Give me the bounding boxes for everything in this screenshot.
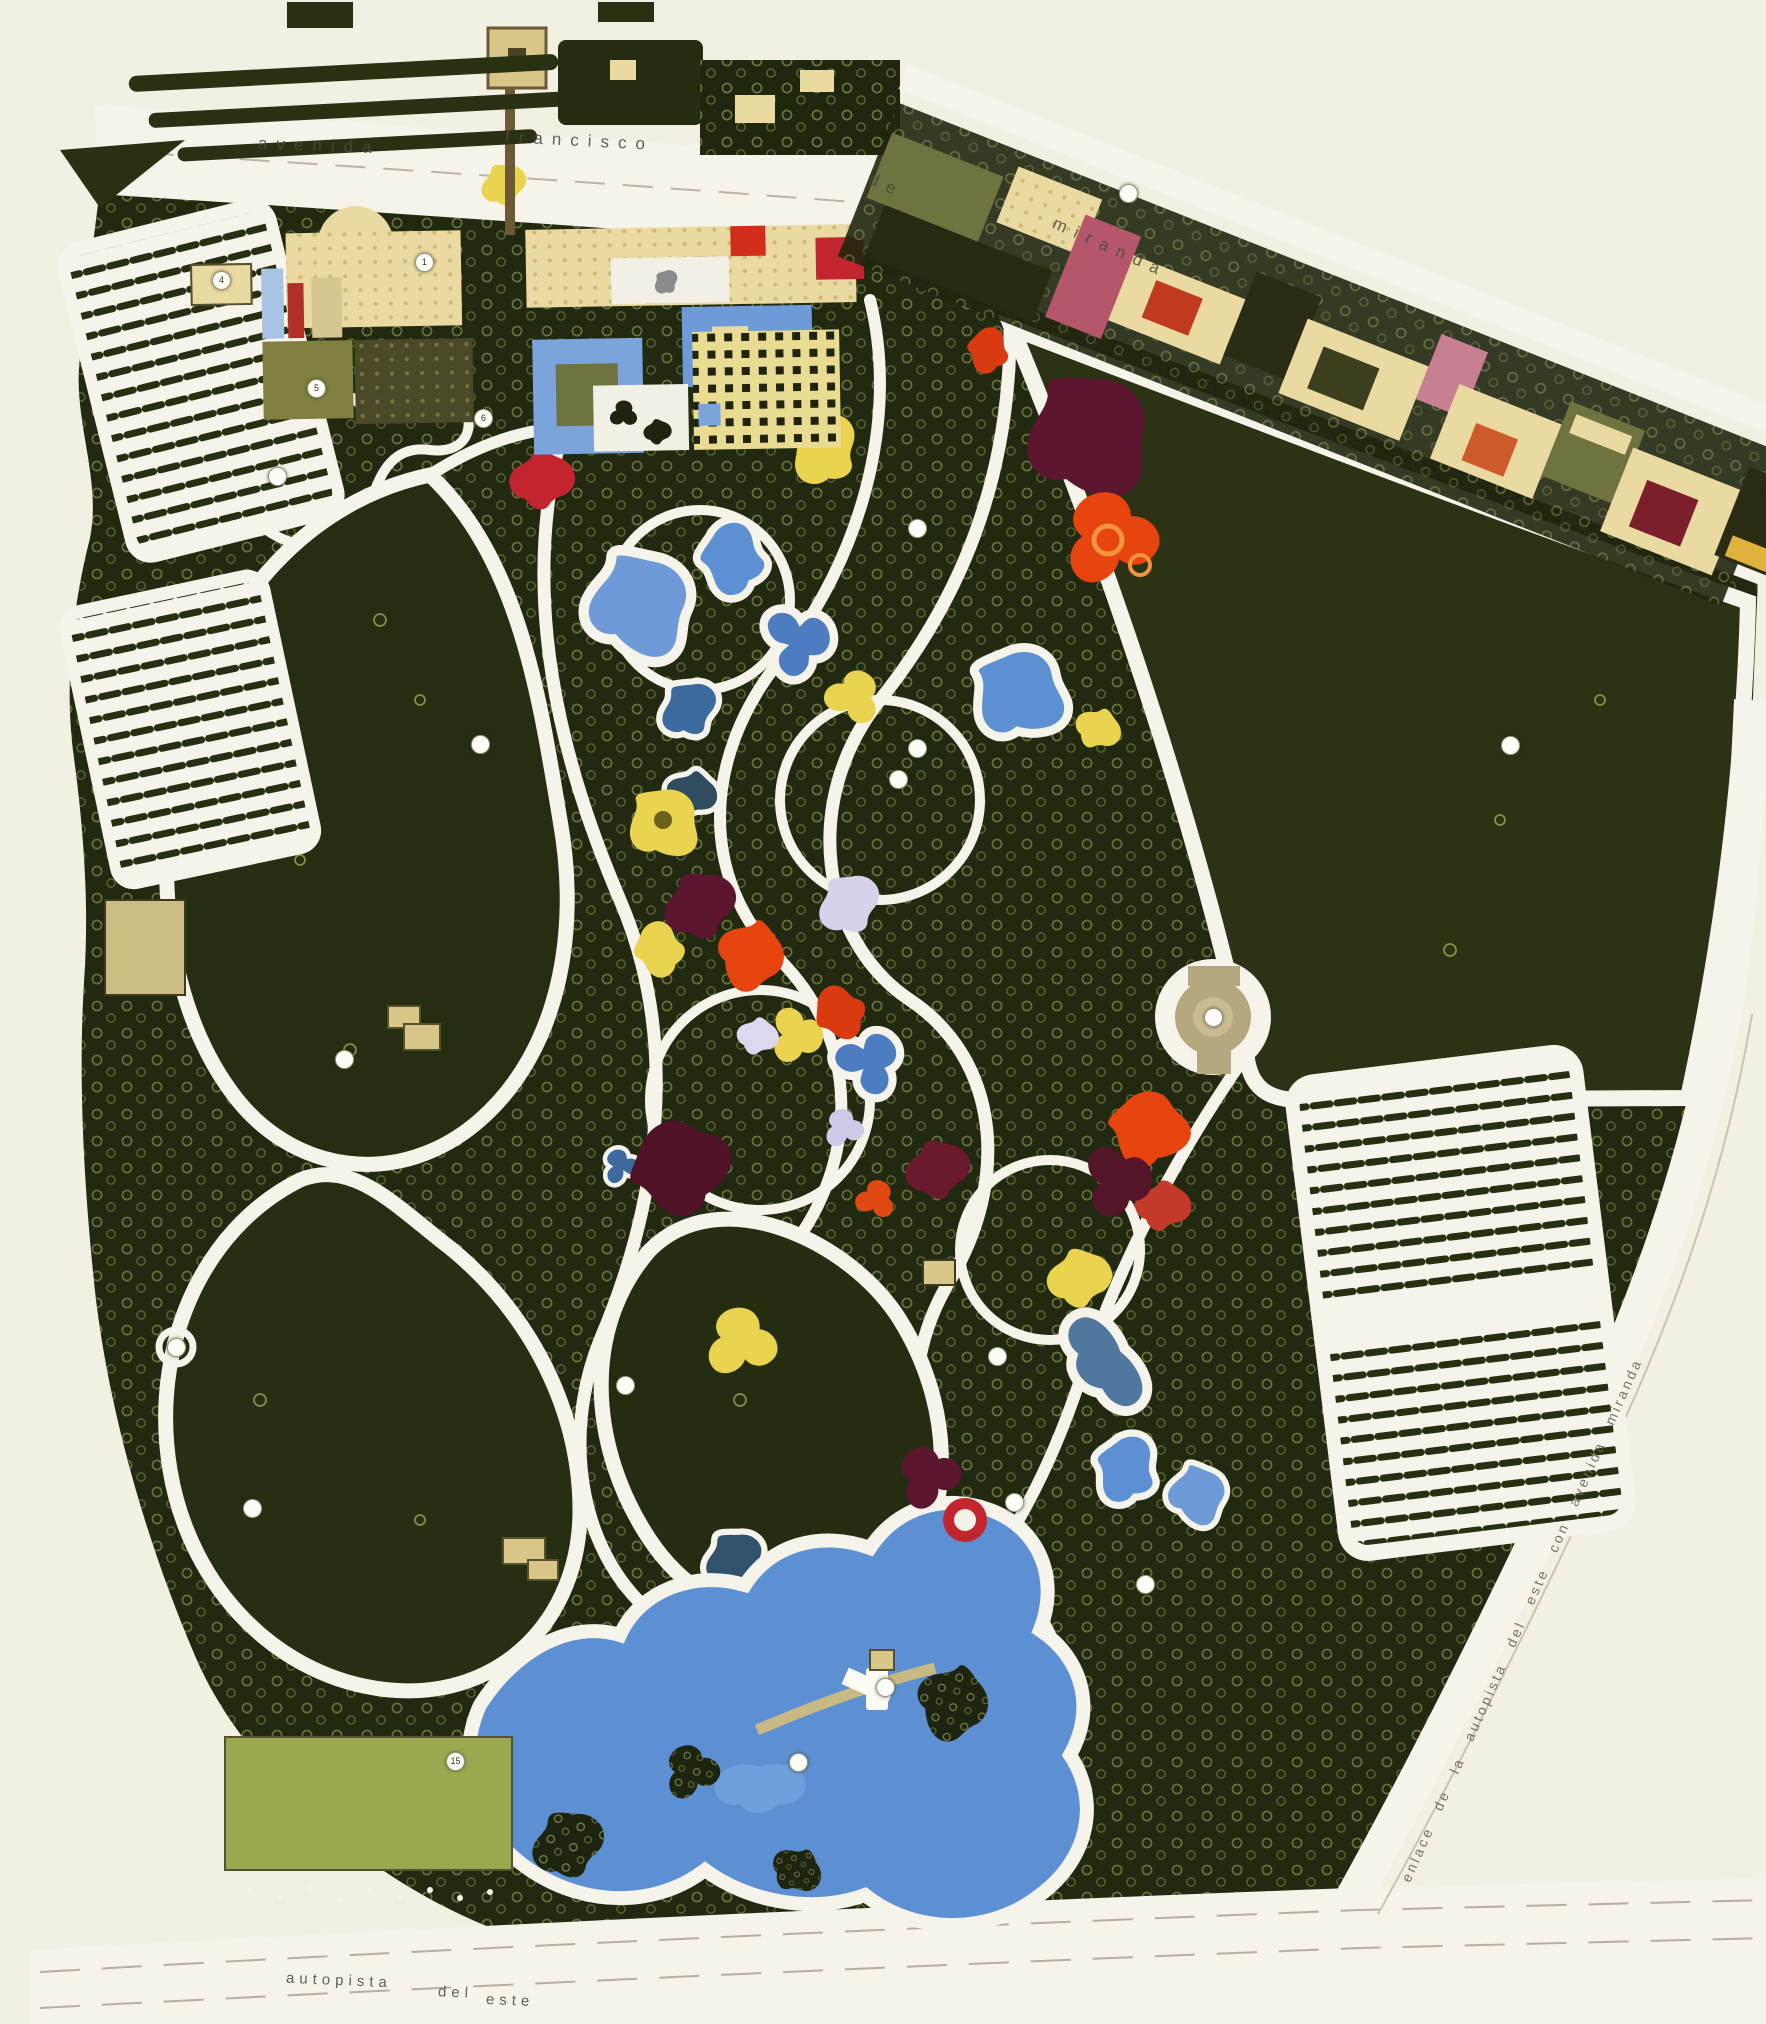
map-marker	[471, 735, 490, 754]
map-marker	[1501, 736, 1520, 755]
map-marker	[1136, 1575, 1155, 1594]
map-marker-15: 15	[446, 1752, 465, 1771]
map-marker	[908, 739, 927, 758]
garden-kiosk	[923, 1260, 955, 1285]
road-label-este: este	[486, 1991, 535, 2010]
map-marker	[1119, 184, 1138, 203]
pavilion-west	[105, 900, 185, 995]
map-marker	[243, 1499, 262, 1518]
map-marker	[789, 1753, 808, 1772]
map-marker	[908, 519, 927, 538]
plan-drawing	[0, 0, 1766, 2024]
map-marker-6: 6	[474, 409, 493, 428]
map-marker	[1204, 1008, 1223, 1027]
museum-complex	[525, 224, 867, 455]
map-marker	[335, 1050, 354, 1069]
map-marker	[268, 467, 287, 486]
road-label-avenida: avenida	[258, 134, 381, 158]
map-marker	[616, 1376, 635, 1395]
map-marker-4: 4	[212, 271, 231, 290]
road-label-del: del	[438, 1983, 474, 2002]
map-marker	[876, 1678, 895, 1697]
map-marker	[988, 1347, 1007, 1366]
map-marker-5: 5	[307, 379, 326, 398]
map-marker	[1005, 1493, 1024, 1512]
map-marker	[889, 770, 908, 789]
map-marker	[167, 1338, 186, 1357]
park-master-plan: avenida francisco de miranda autopista d…	[0, 0, 1766, 2024]
map-marker-1: 1	[415, 253, 434, 272]
